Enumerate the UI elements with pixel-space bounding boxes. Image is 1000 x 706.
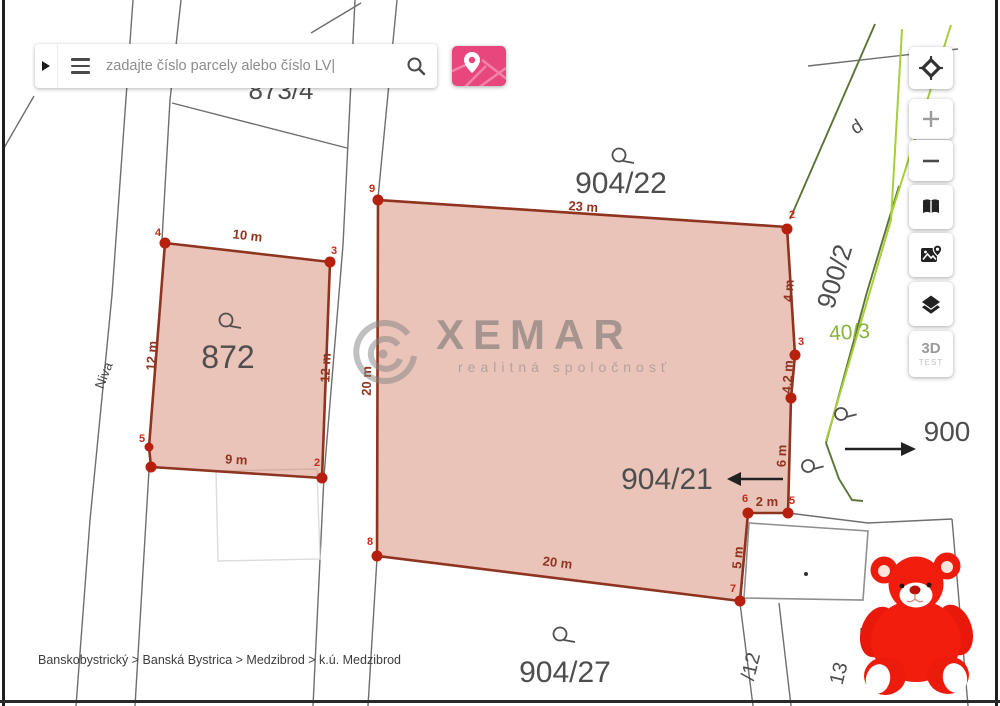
parcel-label-40-3: 40/3 <box>828 320 870 346</box>
svg-text:2: 2 <box>789 209 795 221</box>
svg-text:5: 5 <box>789 495 795 507</box>
svg-text:9 m: 9 m <box>225 451 248 467</box>
3d-test-label: TEST <box>919 359 943 367</box>
svg-text:4,2 m: 4,2 m <box>779 360 796 394</box>
breadcrumb[interactable]: Banskobystrický > Banská Bystrica > Medz… <box>38 653 401 667</box>
open-book-icon <box>919 195 943 219</box>
parcel-label-12: /12 <box>737 650 765 682</box>
layers-icon <box>919 292 943 316</box>
svg-text:3: 3 <box>331 245 337 257</box>
menu-button[interactable] <box>58 44 102 88</box>
3d-button[interactable]: 3D TEST <box>909 331 953 377</box>
svg-text:6 m: 6 m <box>774 444 790 467</box>
right-border <box>995 0 998 706</box>
svg-text:23 m: 23 m <box>568 198 599 215</box>
play-arrow-icon <box>42 61 50 71</box>
svg-text:4: 4 <box>155 227 162 239</box>
svg-text:12 m: 12 m <box>143 340 160 371</box>
svg-text:2 m: 2 m <box>756 494 778 509</box>
photo-pin-icon <box>918 242 944 268</box>
map-style-button[interactable] <box>452 46 506 86</box>
parcel-label-13: 13 <box>826 660 853 687</box>
building-outline <box>744 523 868 600</box>
search-button[interactable] <box>395 44 437 88</box>
svg-text:6: 6 <box>742 493 748 505</box>
svg-text:5 m: 5 m <box>729 546 746 570</box>
search-input[interactable] <box>102 58 395 74</box>
svg-text:20 m: 20 m <box>359 366 375 396</box>
svg-text:9: 9 <box>369 183 375 195</box>
parcel-label-904-21: 904/21 <box>621 463 713 496</box>
teddy-bear-image <box>854 553 979 706</box>
svg-text:8: 8 <box>367 536 373 548</box>
parcel-label-904-27: 904/27 <box>519 656 611 689</box>
svg-text:2: 2 <box>314 457 320 469</box>
locate-diamond-icon <box>918 55 944 81</box>
magnifier-icon <box>405 55 427 77</box>
svg-text:10 m: 10 m <box>232 226 263 244</box>
bottom-border <box>0 700 1000 703</box>
zoom-in-button[interactable] <box>909 99 953 139</box>
parcel-label-872: 872 <box>201 339 254 375</box>
parcel-label-904-22: 904/22 <box>575 167 667 200</box>
left-border <box>2 0 5 706</box>
hamburger-icon <box>71 58 90 60</box>
svg-text:12 m: 12 m <box>317 353 334 383</box>
parcel-label-900-2: 900/2 <box>811 241 859 312</box>
building-outline-faint <box>216 469 320 561</box>
layers-button[interactable] <box>909 282 953 326</box>
zoom-out-button[interactable] <box>909 140 953 181</box>
cadastral-map[interactable]: 873/4 904/22 904/21 904/27 872 900/2 900… <box>0 0 1000 706</box>
3d-label: 3D <box>921 341 940 356</box>
svg-text:4 m: 4 m <box>780 279 797 302</box>
search-bar <box>35 44 437 88</box>
imagery-button[interactable] <box>909 233 953 277</box>
street-label-niva: Niva <box>92 360 116 391</box>
locate-button[interactable] <box>909 47 953 89</box>
zbgis-map-window: 873/4 904/22 904/21 904/27 872 900/2 900… <box>0 0 1000 706</box>
svg-text:5: 5 <box>139 433 145 445</box>
parcel-label-900: 900 <box>924 416 971 447</box>
svg-text:3: 3 <box>798 336 804 348</box>
collapse-arrow-button[interactable] <box>35 44 58 88</box>
basemap-button[interactable] <box>909 185 953 229</box>
svg-text:7: 7 <box>730 583 736 595</box>
parcel-904-21[interactable] <box>377 200 795 601</box>
map-with-pin-icon <box>452 46 506 86</box>
direction-arrow-right <box>845 442 916 456</box>
plus-icon <box>919 107 943 131</box>
minus-icon <box>919 149 943 173</box>
map-label-d: d <box>847 116 867 139</box>
